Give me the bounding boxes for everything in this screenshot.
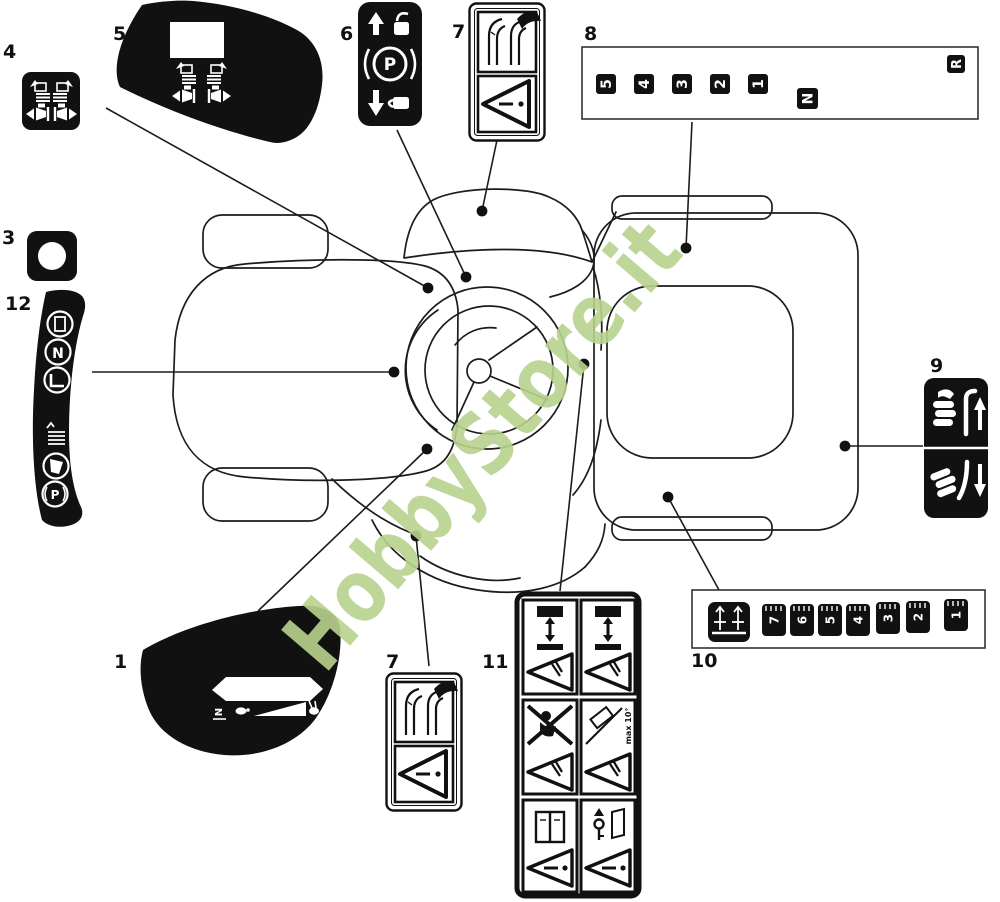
callout-number-7b: 7 xyxy=(386,651,399,673)
callout-dot-5 xyxy=(423,283,434,294)
callout-dot-6 xyxy=(461,272,472,283)
callout-dot-9 xyxy=(840,441,851,452)
front-wheel-right xyxy=(203,468,328,521)
callout-number-8: 8 xyxy=(584,23,597,45)
callout-number-12: 12 xyxy=(5,293,31,315)
callout-number-3: 3 xyxy=(2,227,15,249)
callout-dot-12 xyxy=(389,367,400,378)
height-3: 3 xyxy=(882,614,896,622)
height-4: 4 xyxy=(852,616,866,624)
rear-wheel-right xyxy=(612,517,772,540)
diagram-canvas: P 5 4 3 2 1 N xyxy=(0,0,1000,902)
callout-dot-10 xyxy=(663,492,674,503)
decal-3-ignition-label xyxy=(27,231,77,281)
manual-book-icon xyxy=(536,812,564,842)
throttle-neutral-letter: N xyxy=(212,708,223,716)
callout-number-11: 11 xyxy=(482,651,508,673)
height-7: 7 xyxy=(768,616,782,624)
callout-number-4: 4 xyxy=(3,41,16,63)
dash-cowl xyxy=(404,189,592,262)
slope-max-text: max 10° xyxy=(624,708,633,745)
gear-5: 5 xyxy=(599,79,615,89)
decal-9-grass-catcher-label xyxy=(924,378,988,518)
callout-number-5: 5 xyxy=(113,23,126,45)
decal-11-safety-warning-label: max 10° xyxy=(517,594,639,896)
height-5: 5 xyxy=(824,616,838,624)
gear-2: 2 xyxy=(713,79,729,89)
decal-5-dash-panel-label xyxy=(117,1,323,143)
gear-3: 3 xyxy=(675,79,691,89)
height-6: 6 xyxy=(796,616,810,624)
height-2: 2 xyxy=(912,613,926,621)
callout-number-7a: 7 xyxy=(452,21,465,43)
gear-4: 4 xyxy=(637,79,653,89)
callout-number-6: 6 xyxy=(340,23,353,45)
gear-neutral: N xyxy=(801,93,817,105)
decal-location-diagram: P 5 4 3 2 1 N xyxy=(0,0,1000,902)
decal-6-parking-brake-label: P xyxy=(358,2,422,126)
callout-dot-7a xyxy=(477,206,488,217)
gear-reverse: R xyxy=(950,59,965,69)
decal-7-lever-warning-label-top xyxy=(470,4,545,141)
callout-number-9: 9 xyxy=(930,355,943,377)
neutral-letter: N xyxy=(52,346,64,362)
decal-12-console-strip-label: N P xyxy=(33,290,85,527)
decal-4-discharge-label xyxy=(22,72,80,130)
keyhole-dot-icon xyxy=(38,242,66,270)
deck-curve-4 xyxy=(585,524,605,567)
gear-1: 1 xyxy=(751,79,767,89)
height-1: 1 xyxy=(950,611,964,619)
parking-letter: P xyxy=(51,488,60,502)
callout-number-1: 1 xyxy=(114,651,127,673)
callout-number-10: 10 xyxy=(691,650,717,672)
decal-10-cutting-height-label: 7 6 5 4 3 2 1 xyxy=(692,590,985,648)
decal-7-lever-warning-label-bottom xyxy=(387,674,462,811)
lever-slot xyxy=(212,677,323,701)
display-window xyxy=(170,22,224,58)
decal-8-gear-shift-label: 5 4 3 2 1 N R xyxy=(582,47,978,119)
svg-text:P: P xyxy=(384,55,396,75)
